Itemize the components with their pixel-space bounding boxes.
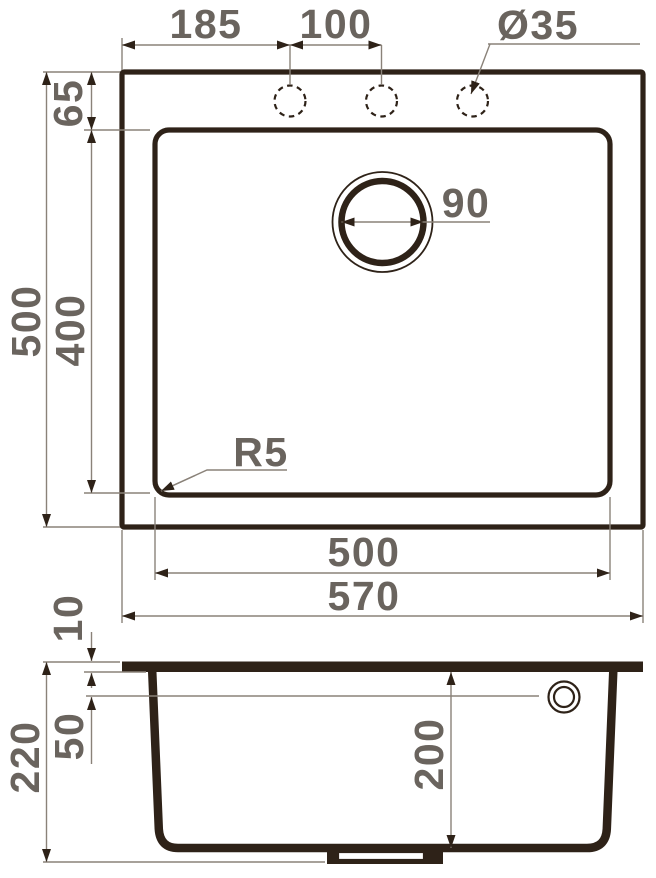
dim-label-10: 10 — [45, 594, 91, 643]
sink-outer-edge — [122, 72, 643, 527]
dim-label-90: 90 — [442, 180, 491, 226]
section-view: 10 50 220 200 — [2, 594, 643, 864]
dim-label-570: 570 — [328, 573, 401, 619]
faucet-hole-1 — [275, 86, 306, 117]
bowl-profile — [152, 666, 614, 848]
dim-label-65: 65 — [45, 79, 91, 128]
overflow-inner-ring — [554, 687, 574, 707]
drawing-canvas: 185 100 Ø35 65 500 400 90 R5 500 570 — [0, 0, 656, 878]
drain-cover-plate — [338, 852, 424, 860]
faucet-hole-2 — [366, 86, 397, 117]
dim-label-100: 100 — [300, 1, 373, 47]
dim-label-200: 200 — [406, 718, 452, 791]
dim-label-50: 50 — [46, 712, 92, 761]
dim-label-corner-radius: R5 — [233, 429, 288, 475]
technical-drawing: 185 100 Ø35 65 500 400 90 R5 500 570 — [0, 0, 656, 878]
dim-label-500-left: 500 — [3, 285, 49, 358]
rim-profile — [122, 662, 643, 673]
dim-label-hole-diameter: Ø35 — [497, 2, 579, 48]
leader-arrow-corner-radius — [161, 476, 195, 492]
dim-label-500-bottom: 500 — [328, 529, 401, 575]
dim-label-400: 400 — [47, 294, 93, 367]
dim-label-220: 220 — [2, 721, 48, 794]
dim-label-185: 185 — [170, 1, 243, 47]
top-view: 185 100 Ø35 65 500 400 90 R5 500 570 — [3, 1, 643, 623]
bowl-edge — [155, 130, 610, 495]
